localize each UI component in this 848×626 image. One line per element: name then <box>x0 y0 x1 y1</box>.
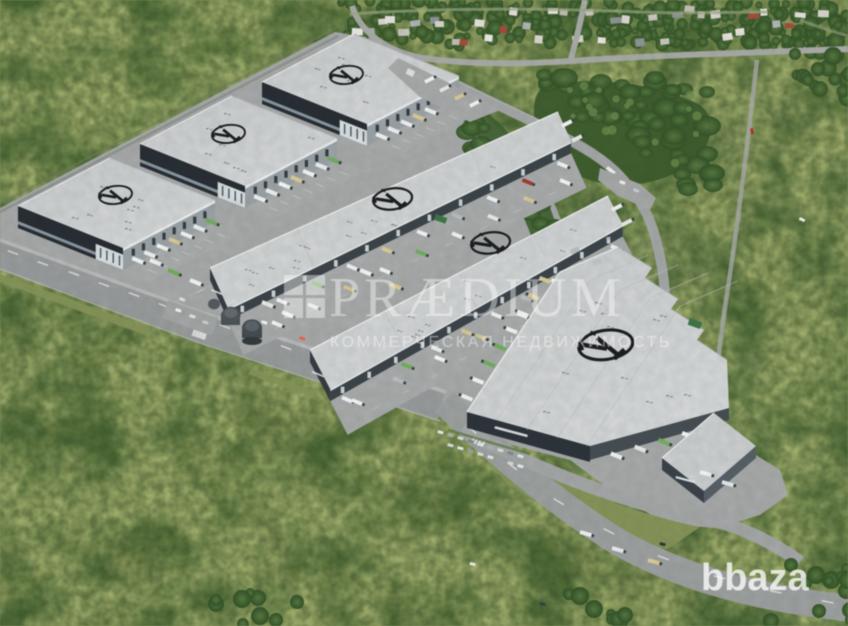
svg-text:PRÆDIUM: PRÆDIUM <box>329 267 625 329</box>
svg-text:КОММЕРЧЕСКАЯ НЕДВИЖИМОСТЬ: КОММЕРЧЕСКАЯ НЕДВИЖИМОСТЬ <box>330 334 672 351</box>
svg-text:bbaza: bbaza <box>701 557 810 599</box>
